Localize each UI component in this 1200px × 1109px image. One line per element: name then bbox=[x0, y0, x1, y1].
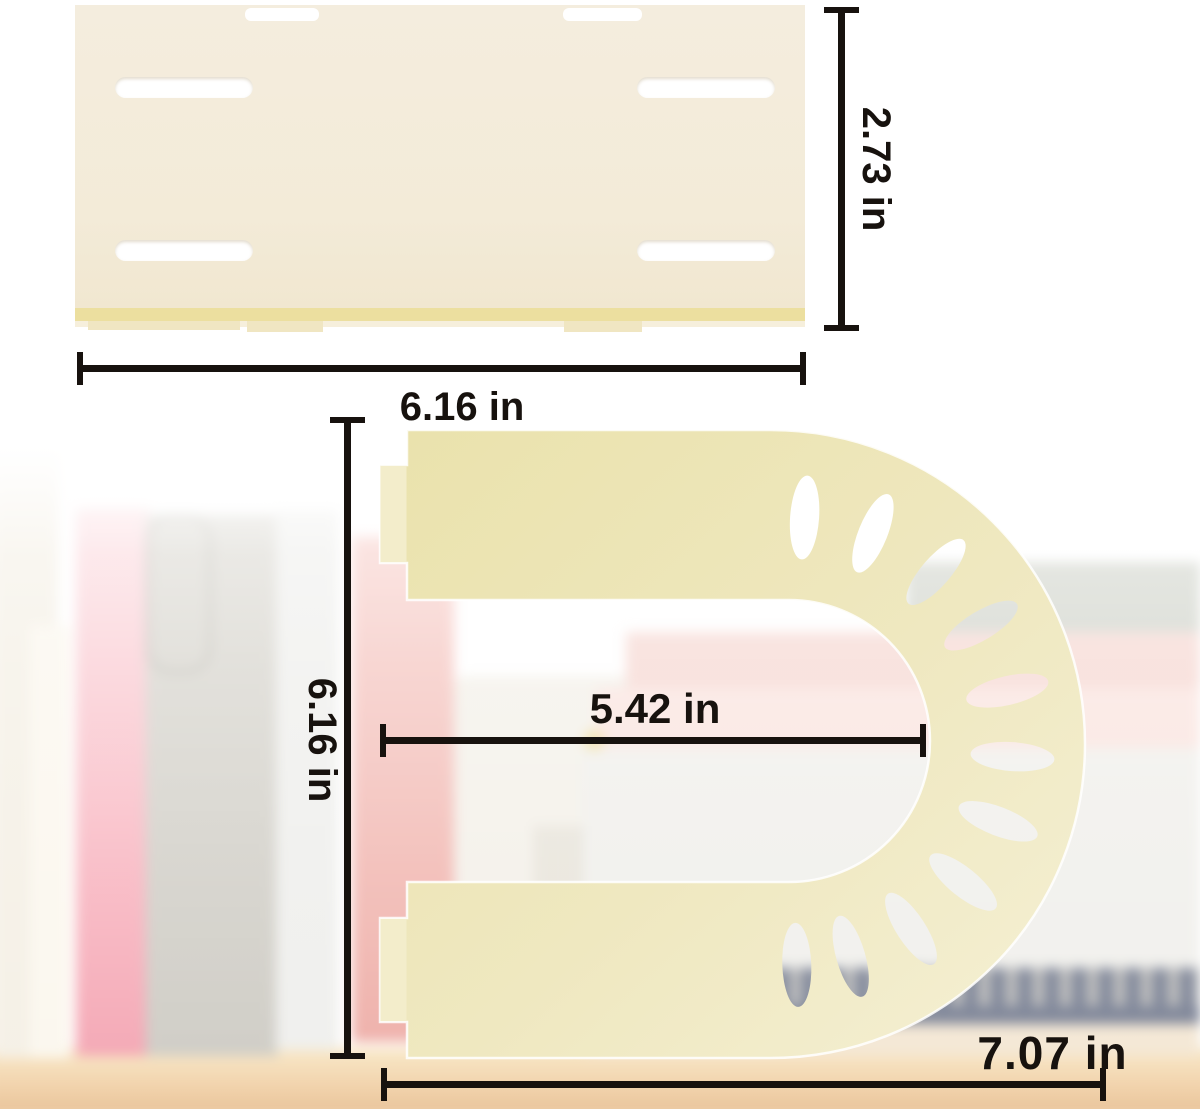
plate-slot bbox=[115, 240, 253, 261]
plate-slot bbox=[637, 77, 775, 98]
plate-slot bbox=[115, 77, 253, 98]
plate-width-label: 6.16 in bbox=[362, 387, 562, 427]
bookend-top-tab bbox=[381, 466, 407, 562]
base-plate-tab bbox=[88, 321, 240, 330]
base-plate bbox=[75, 5, 805, 308]
dimension-end-cap bbox=[330, 417, 365, 423]
dimension-end-cap bbox=[824, 325, 859, 331]
plate-top-slot bbox=[563, 8, 642, 21]
dimension-end-cap bbox=[920, 724, 926, 757]
plate-width-dimension-line bbox=[80, 365, 803, 372]
plate-slot bbox=[637, 240, 775, 261]
dimension-end-cap bbox=[77, 352, 83, 385]
base-plate-tab bbox=[564, 321, 642, 332]
dimension-end-cap bbox=[330, 1053, 365, 1059]
bookend-height-dimension-line bbox=[344, 420, 351, 1056]
bookend-shape bbox=[380, 430, 1085, 1058]
plate-top-slot bbox=[245, 8, 319, 21]
inner-width-label: 5.42 in bbox=[505, 688, 805, 730]
product-dimension-image: 6.16 in 2.73 in 6.16 in 5.42 in 7.07 in bbox=[0, 0, 1200, 1109]
base-plate-edge-strip bbox=[75, 308, 805, 321]
dimension-end-cap bbox=[381, 1068, 387, 1101]
bookend-width-label: 7.07 in bbox=[930, 1030, 1175, 1076]
plate-height-dimension-line bbox=[838, 10, 845, 328]
bookend-width-dimension-line bbox=[384, 1081, 1103, 1088]
dimension-end-cap bbox=[824, 7, 859, 13]
inner-width-dimension-line bbox=[383, 737, 923, 744]
base-plate-tab bbox=[247, 321, 323, 332]
dimension-end-cap bbox=[800, 352, 806, 385]
plate-height-label: 2.73 in bbox=[856, 56, 896, 282]
bookend-height-label: 6.16 in bbox=[302, 610, 342, 870]
dimension-end-cap bbox=[380, 724, 386, 757]
bookend-bottom-tab bbox=[381, 919, 407, 1021]
